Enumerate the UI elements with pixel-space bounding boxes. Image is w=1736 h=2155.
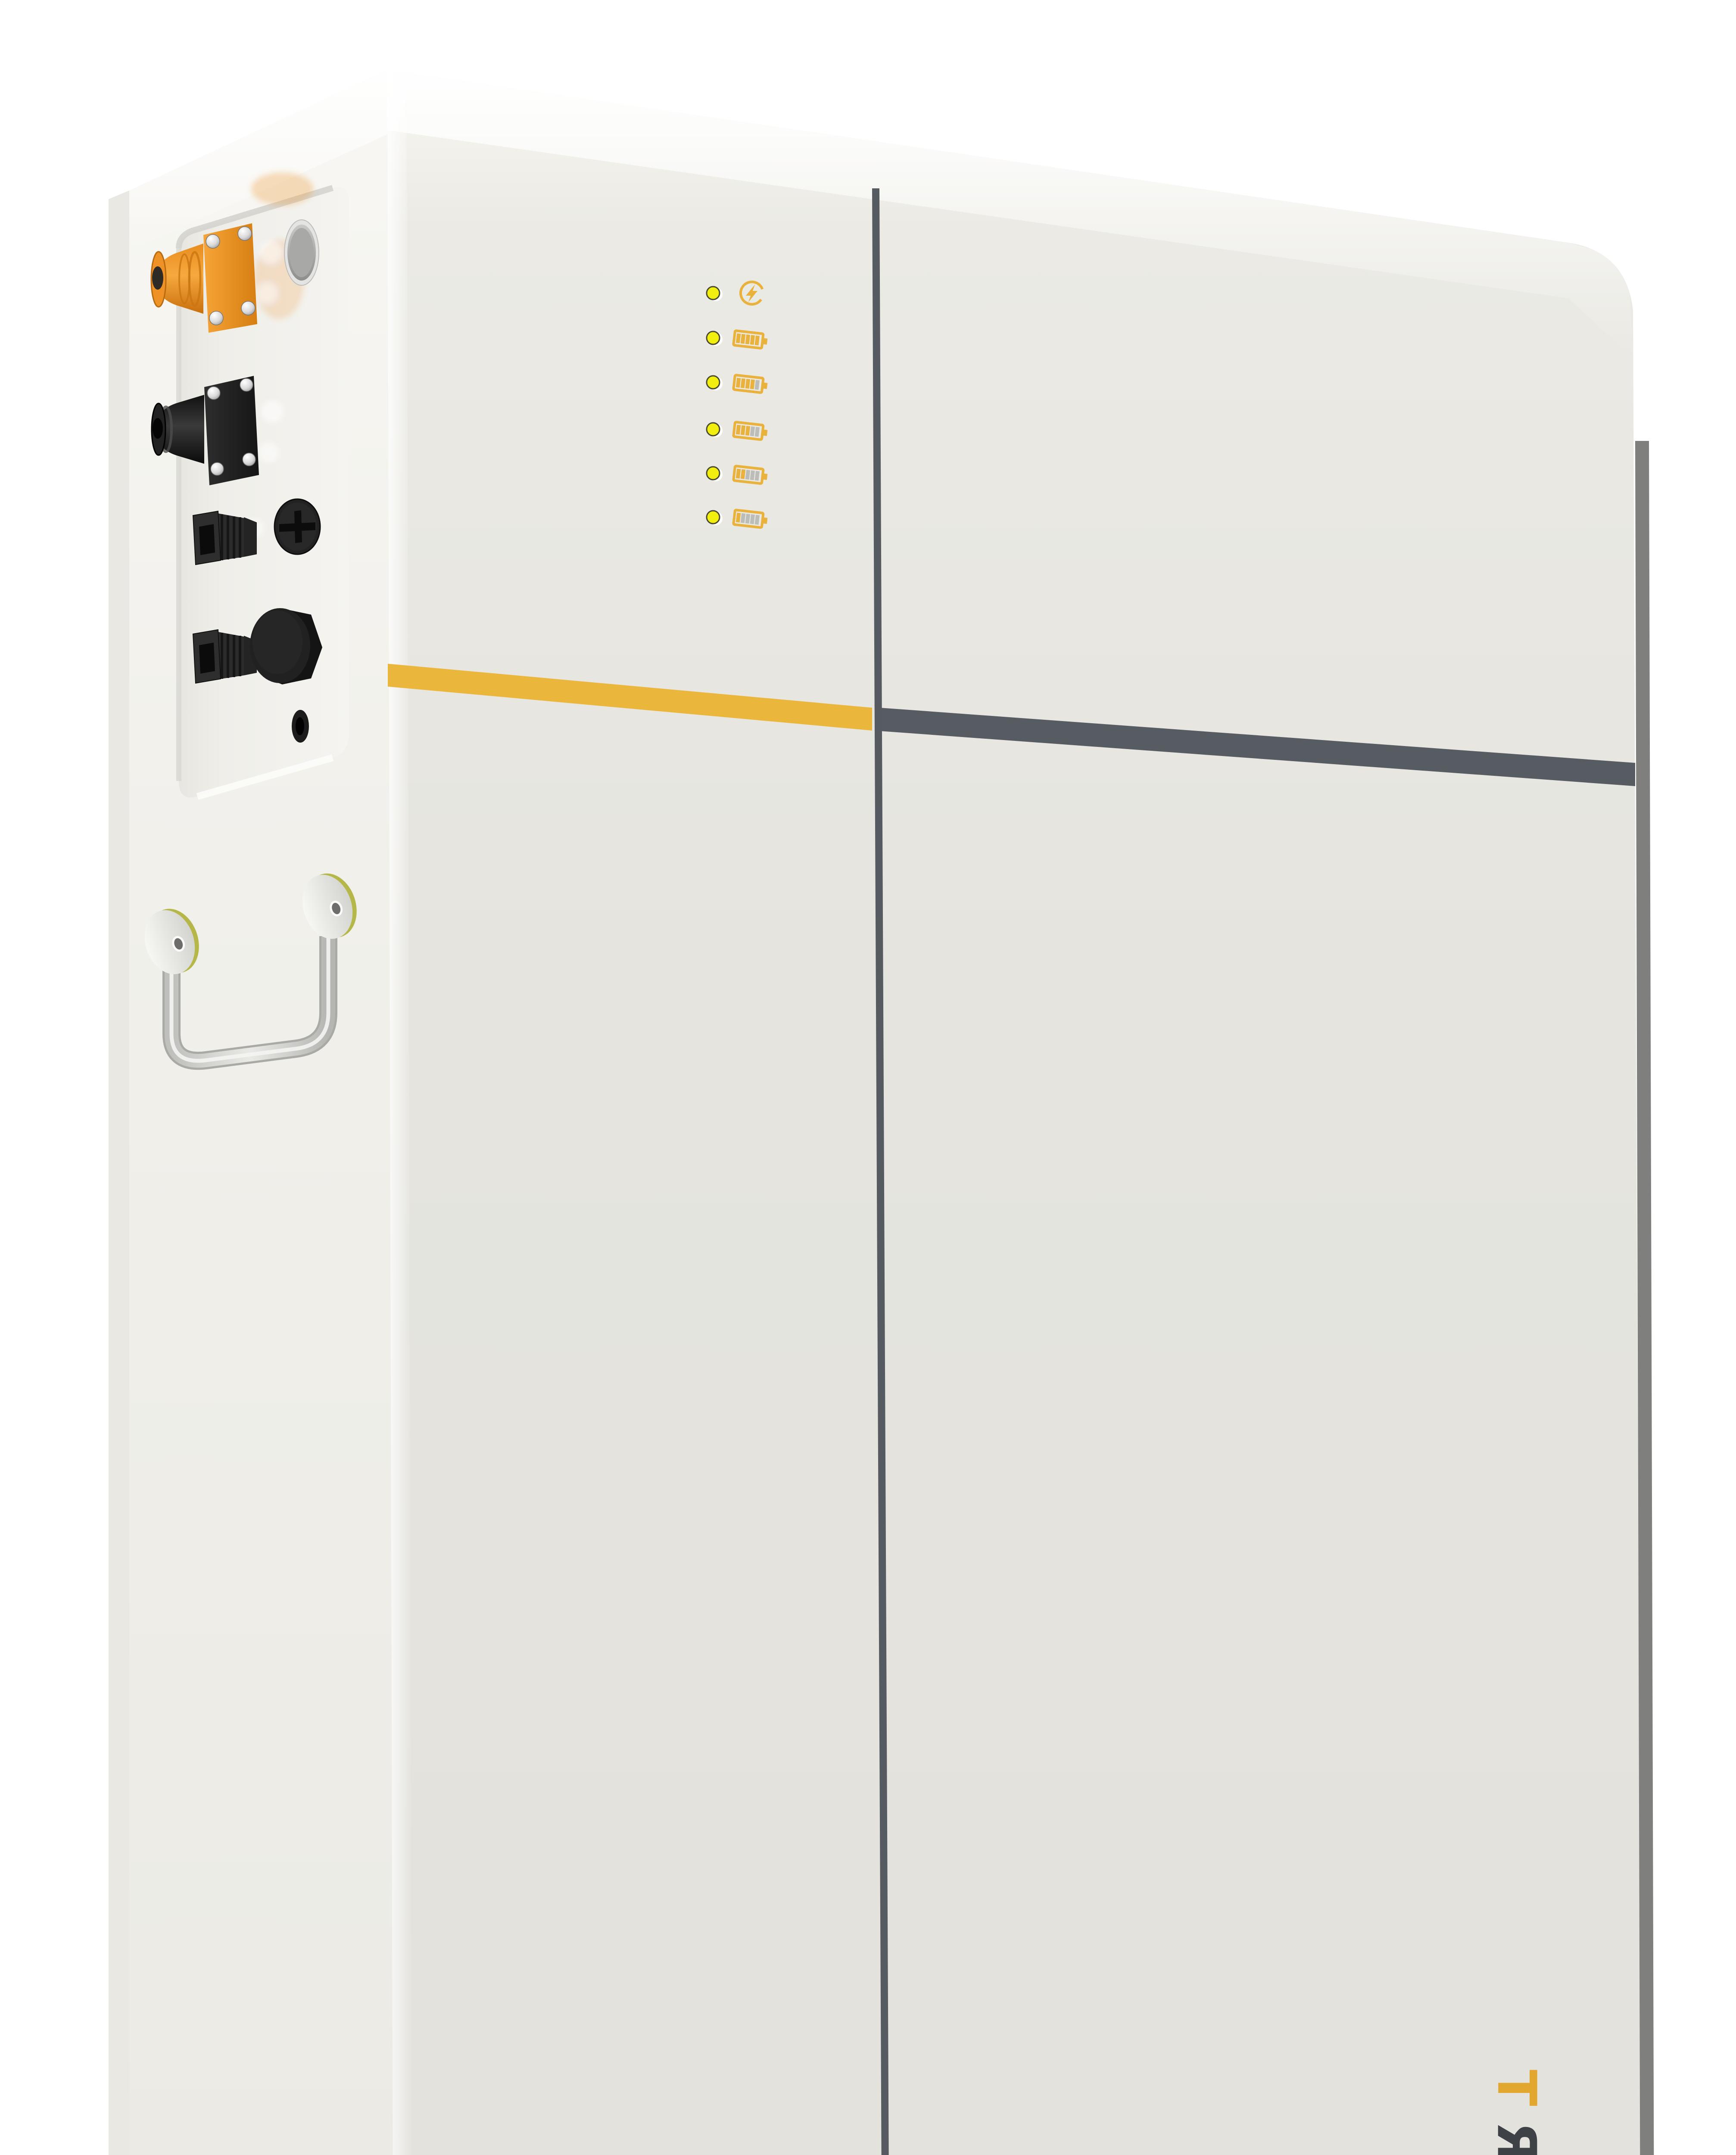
product-photo-stage: TЯIPLƎ POWER xyxy=(0,0,1736,2155)
screw-icon xyxy=(241,301,255,315)
screw-icon xyxy=(209,311,223,325)
screw-icon xyxy=(243,453,256,466)
rj45-socket-icon xyxy=(199,643,215,674)
screw-icon xyxy=(207,387,220,400)
round-metal-button[interactable] xyxy=(284,220,319,285)
brand-logo-triple: TЯIPLƎ xyxy=(1485,2070,1547,2155)
front-face xyxy=(387,70,1642,2155)
rj45-socket-icon xyxy=(199,524,215,555)
screw-icon xyxy=(240,378,253,391)
connector-recess-panel xyxy=(151,172,349,797)
battery-unit-render: TЯIPLƎ POWER xyxy=(0,0,1736,2155)
hex-plug xyxy=(250,608,322,684)
vent-grommet xyxy=(292,710,309,743)
orange-pin-hole xyxy=(152,266,163,290)
screw-icon xyxy=(206,234,220,248)
back-left-edge-strip xyxy=(109,191,129,2155)
port-hex-nut xyxy=(244,517,257,557)
screw-icon xyxy=(238,227,252,240)
black-pin-hole xyxy=(153,418,163,439)
screw-cap[interactable] xyxy=(274,499,320,554)
screw-icon xyxy=(211,462,224,475)
